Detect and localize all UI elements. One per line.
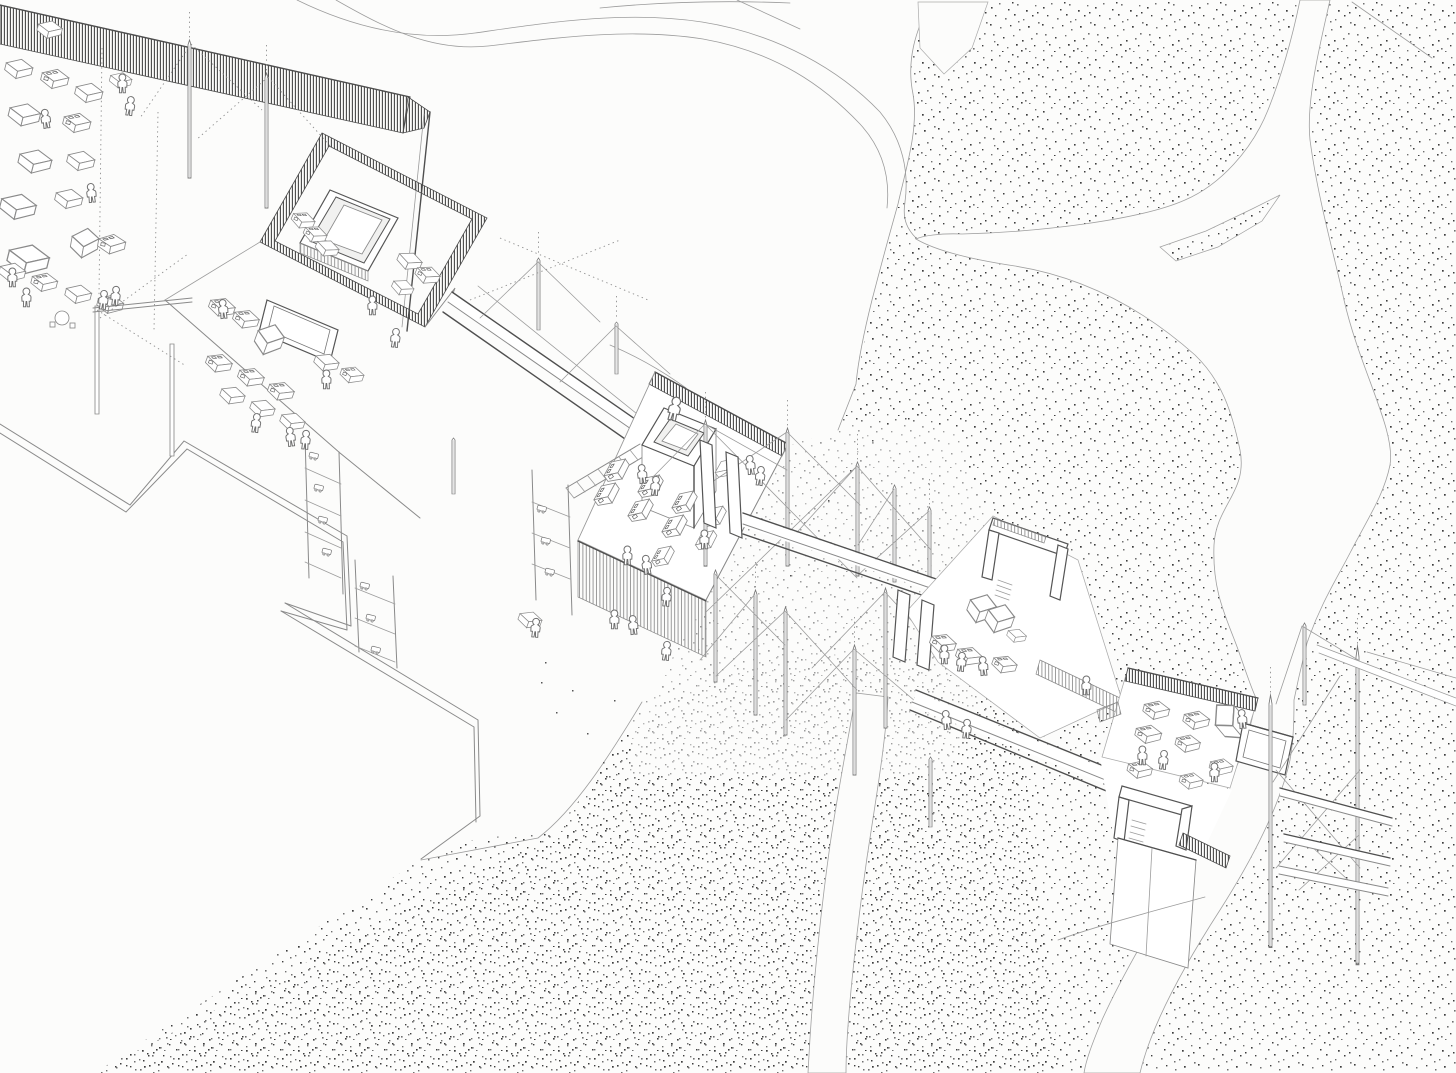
mast — [537, 258, 540, 330]
architectural-drawing: Axonometric site drawing of linked pavil… — [0, 0, 1456, 1073]
mast — [188, 40, 191, 178]
mast — [452, 438, 455, 494]
mast — [265, 73, 268, 208]
mast — [615, 322, 618, 374]
support-post — [929, 757, 932, 827]
